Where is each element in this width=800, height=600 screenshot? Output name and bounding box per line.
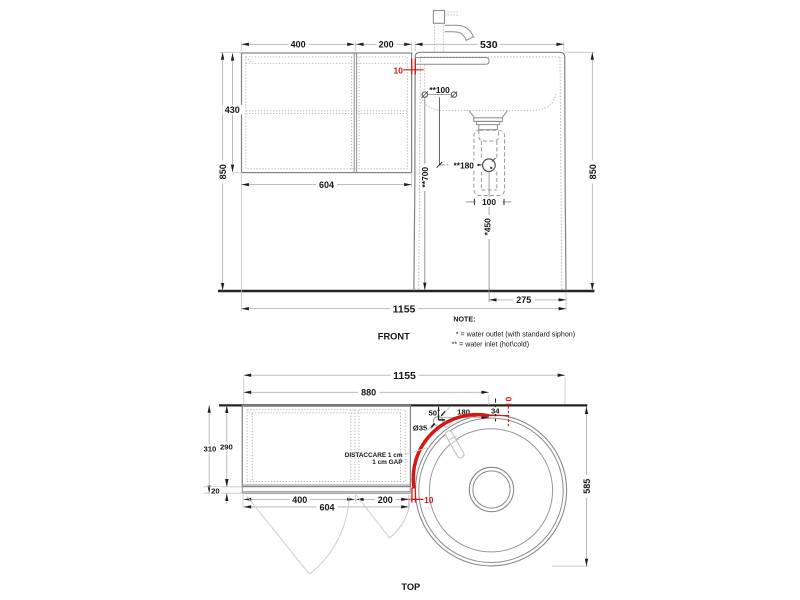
svg-text:Ø35: Ø35 [413, 424, 428, 433]
svg-text:275: 275 [516, 295, 531, 305]
svg-text:34: 34 [491, 406, 500, 415]
svg-text:10: 10 [394, 65, 404, 75]
svg-text:200: 200 [379, 40, 394, 50]
svg-text:20: 20 [211, 486, 220, 495]
svg-text:FRONT: FRONT [378, 331, 410, 341]
svg-text:585: 585 [582, 479, 592, 494]
svg-text:850: 850 [588, 164, 598, 179]
svg-text:400: 400 [291, 40, 306, 50]
svg-text:430: 430 [225, 105, 240, 115]
svg-text:* = water outlet (with standar: * = water outlet (with standard siphon) [456, 331, 575, 339]
svg-text:290: 290 [220, 443, 233, 452]
svg-text:1 cm GAP: 1 cm GAP [372, 459, 403, 466]
svg-text:880: 880 [361, 388, 376, 398]
svg-text:** = water inlet (hot\cold): ** = water inlet (hot\cold) [452, 340, 529, 348]
svg-text:310: 310 [203, 445, 216, 454]
svg-text:**100: **100 [429, 85, 450, 95]
svg-text:**180: **180 [453, 160, 474, 170]
svg-text:1155: 1155 [393, 303, 416, 315]
svg-text:1155: 1155 [393, 370, 416, 382]
svg-text:604: 604 [319, 180, 334, 190]
svg-text:10: 10 [424, 495, 434, 505]
svg-text:**700: **700 [420, 167, 430, 188]
svg-text:100: 100 [482, 197, 496, 207]
svg-text:850: 850 [218, 164, 228, 179]
svg-text:TOP: TOP [401, 582, 420, 592]
svg-text:200: 200 [378, 495, 393, 505]
svg-text:400: 400 [292, 495, 307, 505]
svg-text:DISTACCARE 1 cm: DISTACCARE 1 cm [345, 452, 403, 459]
svg-text:0: 0 [504, 397, 514, 402]
svg-text:604: 604 [319, 503, 334, 513]
svg-text:530: 530 [480, 39, 498, 51]
svg-text:50: 50 [429, 409, 438, 418]
svg-text:NOTE:: NOTE: [453, 316, 475, 324]
svg-text:*450: *450 [482, 218, 492, 236]
